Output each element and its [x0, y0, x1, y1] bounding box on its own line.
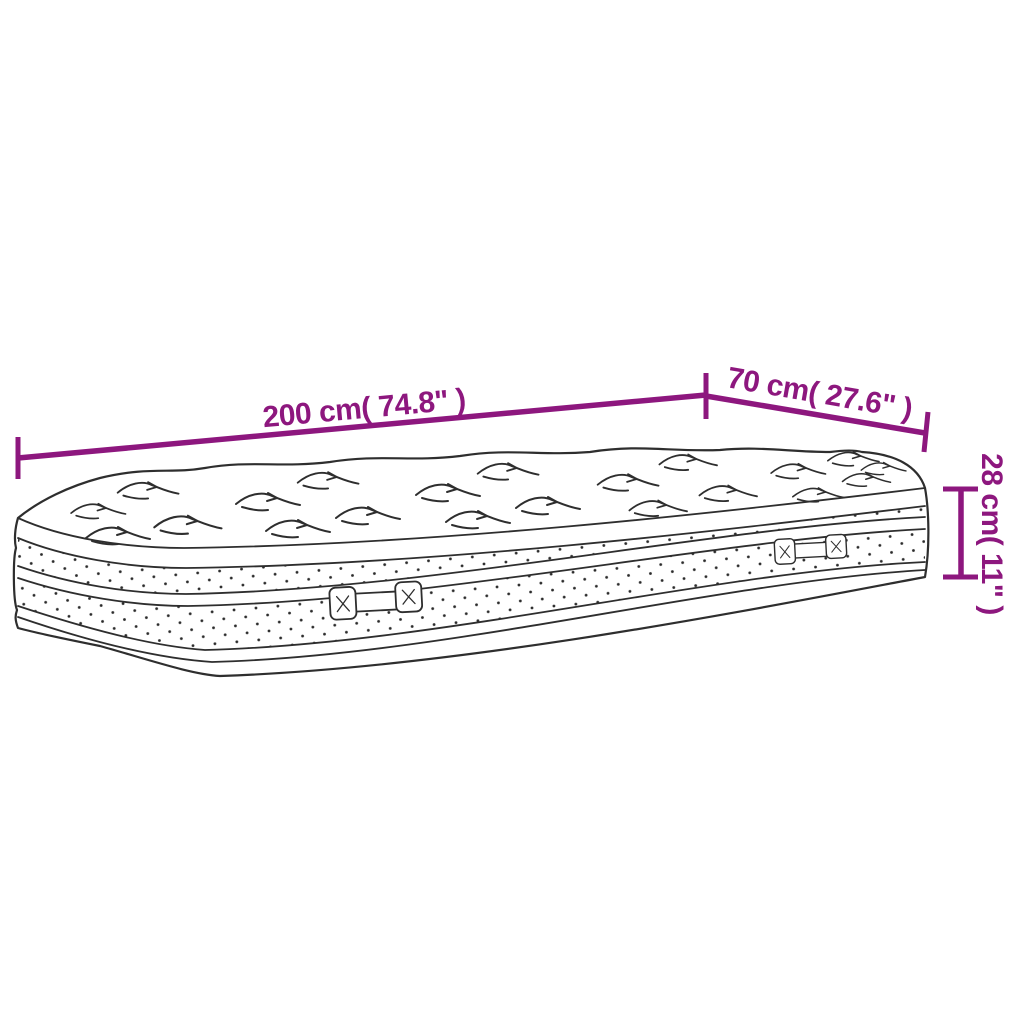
mattress-drawing [14, 448, 929, 676]
mattress-dimensions-illustration: 200 cm( 74.8" ) 70 cm( 27.6" ) 28 cm( 11… [0, 0, 1024, 1024]
width-dimension: 70 cm( 27.6" ) [706, 361, 928, 452]
height-dimension-label: 28 cm( 11" ) [975, 453, 1008, 615]
diagram-canvas: 200 cm( 74.8" ) 70 cm( 27.6" ) 28 cm( 11… [0, 0, 1024, 1024]
height-dimension: 28 cm( 11" ) [943, 453, 1008, 615]
width-dimension-tick-right [924, 412, 928, 452]
